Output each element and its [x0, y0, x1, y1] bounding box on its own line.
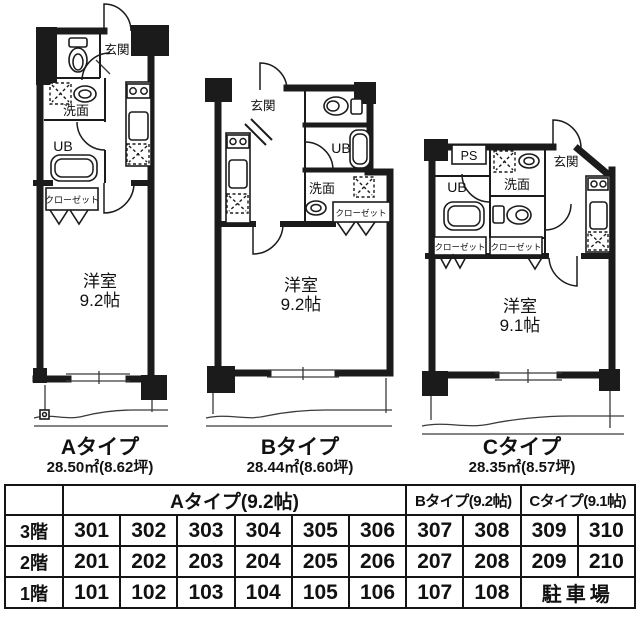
washbasin-icon — [306, 201, 326, 215]
unit-number: 207 — [406, 546, 463, 577]
entry-door-arc-icon — [104, 4, 131, 31]
bathtub-icon — [350, 130, 370, 168]
window — [267, 367, 339, 380]
bathtub-icon — [51, 155, 97, 181]
door-arc-icon — [549, 256, 577, 286]
unit-number: 209 — [521, 546, 578, 577]
plan-b-area: 28.44㎡(8.60坪) — [247, 458, 354, 476]
window — [495, 369, 562, 383]
floor-plan-sheet: 玄関 洗面 UB クローゼット 洋室 9.2帖 Aタイプ 28.50㎡(8.62… — [0, 0, 640, 618]
sink-icon — [590, 202, 607, 229]
door-arc-icon — [104, 183, 134, 213]
unit-number: 105 — [292, 577, 349, 608]
header-type-a: Aタイプ(9.2帖) — [63, 485, 406, 515]
closet-label: クローゼット — [434, 242, 485, 252]
plan-b-title: Bタイプ — [261, 436, 340, 459]
washbasin-icon — [519, 154, 539, 168]
room-size-label: 9.2帖 — [80, 291, 121, 310]
unit-number: 102 — [120, 577, 177, 608]
door-arc-icon — [77, 122, 105, 150]
unit-number: 306 — [349, 515, 406, 546]
door-arc-icon — [253, 224, 283, 254]
unit-number: 101 — [63, 577, 120, 608]
wall-block — [36, 27, 57, 85]
unit-number: 208 — [463, 546, 520, 577]
toilet-icon — [324, 97, 362, 115]
unit-number: 203 — [177, 546, 234, 577]
unit-number: 106 — [349, 577, 406, 608]
room-label: 洋室 — [83, 272, 117, 291]
unit-number: 104 — [235, 577, 292, 608]
header-type-b: Bタイプ(9.2帖) — [406, 485, 520, 515]
unit-number: 103 — [177, 577, 234, 608]
unit-number: 210 — [578, 546, 635, 577]
balcony-wave — [206, 410, 392, 418]
washroom-label: 洗面 — [63, 103, 89, 118]
balcony-wave — [422, 416, 624, 426]
unit-number: 107 — [406, 577, 463, 608]
floor-plans-drawing: 玄関 洗面 UB クローゼット 洋室 9.2帖 Aタイプ 28.50㎡(8.62… — [0, 0, 640, 482]
unit-number: 201 — [63, 546, 120, 577]
header-type-c: Cタイプ(9.1帖) — [521, 485, 636, 515]
closet-door-marks — [50, 210, 88, 224]
unit-number: 301 — [63, 515, 120, 546]
unit-number: 206 — [349, 546, 406, 577]
plan-c-area: 28.35㎡(8.57坪) — [469, 458, 576, 476]
washbasin-icon — [74, 86, 96, 102]
closet-label: クローゼット — [45, 194, 99, 205]
entrance-label: 玄関 — [104, 42, 129, 57]
unit-number: 305 — [292, 515, 349, 546]
balcony-wave — [34, 410, 168, 418]
unit-number: 202 — [120, 546, 177, 577]
unit-number: 303 — [177, 515, 234, 546]
bathtub-icon — [444, 202, 484, 230]
stove-icon — [227, 135, 249, 148]
toilet-icon — [493, 206, 531, 224]
table-row-3f: 3階 301 302 303 304 305 306 307 308 309 3… — [5, 515, 635, 546]
outer-wall — [368, 90, 390, 371]
balcony-lines — [422, 391, 624, 434]
closet-label: クローゼット — [490, 242, 541, 252]
stove-icon — [588, 178, 608, 190]
unit-table: Aタイプ(9.2帖) Bタイプ(9.2帖) Cタイプ(9.1帖) 3階 301 … — [4, 484, 636, 609]
plan-c-title: Cタイプ — [483, 436, 562, 459]
bath-label: UB — [331, 140, 350, 156]
floor-plan-a: 玄関 洗面 UB クローゼット 洋室 9.2帖 Aタイプ 28.50㎡(8.62… — [33, 4, 169, 476]
bath-label: UB — [447, 179, 466, 195]
sink-icon — [229, 160, 247, 188]
window — [66, 371, 130, 384]
floor-label: 3階 — [5, 515, 63, 546]
door-arc-icon — [545, 204, 571, 230]
unit-number: 204 — [235, 546, 292, 577]
entry-door-arc-icon — [260, 63, 287, 90]
unit-number: 307 — [406, 515, 463, 546]
closet-door-marks — [337, 222, 375, 235]
room-size-label: 9.1帖 — [500, 316, 541, 335]
unit-number: 205 — [292, 546, 349, 577]
floor-label: 1階 — [5, 577, 63, 608]
plan-a-area: 28.50㎡(8.62坪) — [47, 458, 154, 476]
entrance-label: 玄関 — [553, 154, 578, 169]
unit-number: 304 — [235, 515, 292, 546]
unit-number: 108 — [463, 577, 520, 608]
unit-number: 308 — [463, 515, 520, 546]
washroom-label: 洗面 — [309, 181, 335, 196]
bath-label: UB — [53, 138, 72, 154]
parking-cell: 駐車場 — [521, 577, 636, 608]
plan-a-title: Aタイプ — [61, 436, 140, 459]
floor-label: 2階 — [5, 546, 63, 577]
pipe-space-label: PS — [461, 149, 478, 163]
entrance-label: 玄関 — [250, 98, 275, 113]
washroom-label: 洗面 — [504, 177, 530, 192]
room-label: 洋室 — [503, 297, 537, 316]
entry-door-arc-icon — [553, 120, 581, 148]
door-arc-icon — [305, 142, 333, 170]
unit-number: 309 — [521, 515, 578, 546]
floor-plan-c: PS 玄関 洗面 UB クローゼット クローゼット 洋室 9.1帖 Cタイプ 2… — [422, 120, 624, 476]
floor-plan-b: 玄関 UB 洗面 クローゼット 洋室 9.2帖 Bタイプ 28.44㎡(8.60… — [205, 63, 392, 476]
room-label: 洋室 — [284, 276, 318, 295]
unit-number: 302 — [120, 515, 177, 546]
sink-icon — [129, 112, 148, 140]
table-row-1f: 1階 101 102 103 104 105 106 107 108 駐車場 — [5, 577, 635, 608]
toilet-icon — [69, 38, 87, 72]
closet-label: クローゼット — [335, 208, 386, 218]
outer-wall-diagonal — [578, 149, 610, 176]
table-row-2f: 2階 201 202 203 204 205 206 207 208 209 2… — [5, 546, 635, 577]
room-size-label: 9.2帖 — [281, 295, 322, 314]
unit-number: 310 — [578, 515, 635, 546]
drain-icon — [40, 410, 49, 419]
table-header-row: Aタイプ(9.2帖) Bタイプ(9.2帖) Cタイプ(9.1帖) — [5, 485, 635, 515]
entry-step-line — [96, 60, 110, 74]
header-blank-cell — [5, 485, 63, 515]
stove-icon — [127, 84, 150, 98]
